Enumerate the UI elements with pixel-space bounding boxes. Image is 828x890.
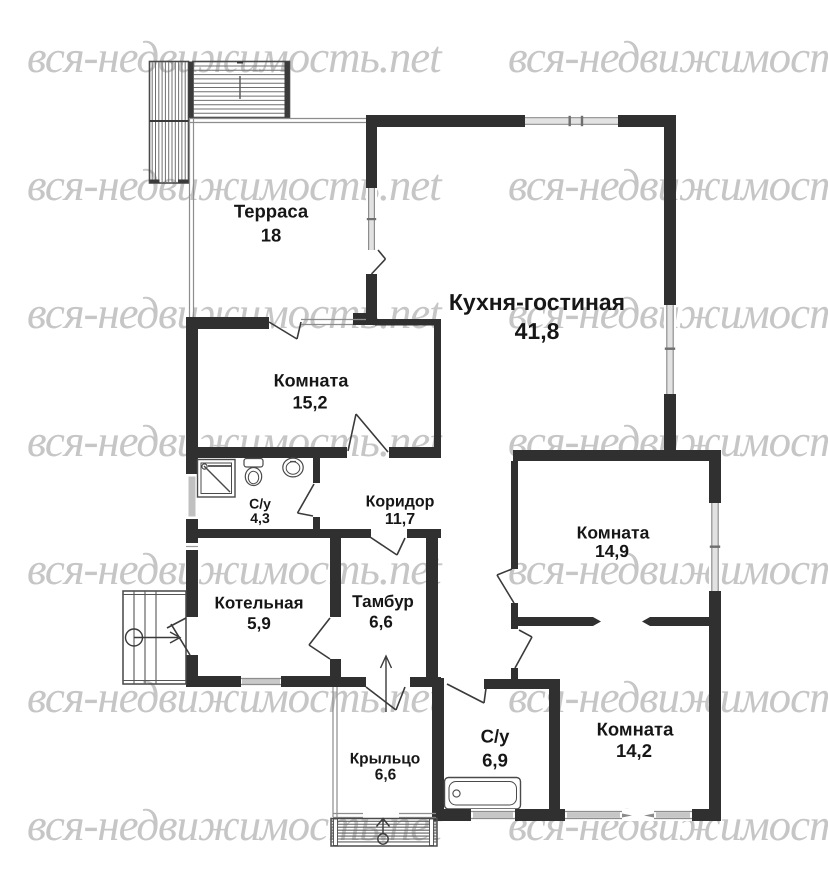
svg-text:С/у: С/у: [481, 726, 511, 747]
svg-text:Комната: Комната: [274, 371, 350, 391]
svg-text:вся-недвижимость.net: вся-недвижимость.net: [508, 544, 828, 594]
svg-text:11,7: 11,7: [385, 511, 415, 528]
svg-text:Тамбур: Тамбур: [352, 592, 414, 611]
svg-text:14,2: 14,2: [616, 740, 652, 761]
svg-text:Крыльцо: Крыльцо: [350, 751, 421, 768]
svg-text:Комната: Комната: [597, 719, 675, 740]
svg-text:Коридор: Коридор: [366, 494, 435, 511]
svg-text:14,9: 14,9: [595, 541, 629, 561]
svg-text:Комната: Комната: [577, 523, 650, 543]
svg-text:Терраса: Терраса: [234, 201, 309, 222]
svg-text:41,8: 41,8: [515, 318, 560, 344]
svg-text:6,6: 6,6: [369, 613, 393, 632]
svg-text:вся-недвижимость.net: вся-недвижимость.net: [27, 416, 443, 466]
svg-text:вся-недвижимость.net: вся-недвижимость.net: [27, 288, 443, 338]
svg-text:6,6: 6,6: [375, 767, 397, 784]
svg-text:15,2: 15,2: [292, 393, 327, 413]
svg-text:вся-недвижимость.net: вся-недвижимость.net: [27, 544, 443, 594]
svg-text:5,9: 5,9: [247, 614, 271, 633]
svg-text:Котельная: Котельная: [214, 594, 303, 613]
svg-text:4,3: 4,3: [250, 510, 270, 526]
svg-text:вся-недвижимость.net: вся-недвижимость.net: [508, 32, 828, 82]
svg-text:Кухня-гостиная: Кухня-гостиная: [449, 289, 625, 315]
svg-text:18: 18: [261, 225, 282, 246]
svg-text:6,9: 6,9: [482, 750, 508, 771]
